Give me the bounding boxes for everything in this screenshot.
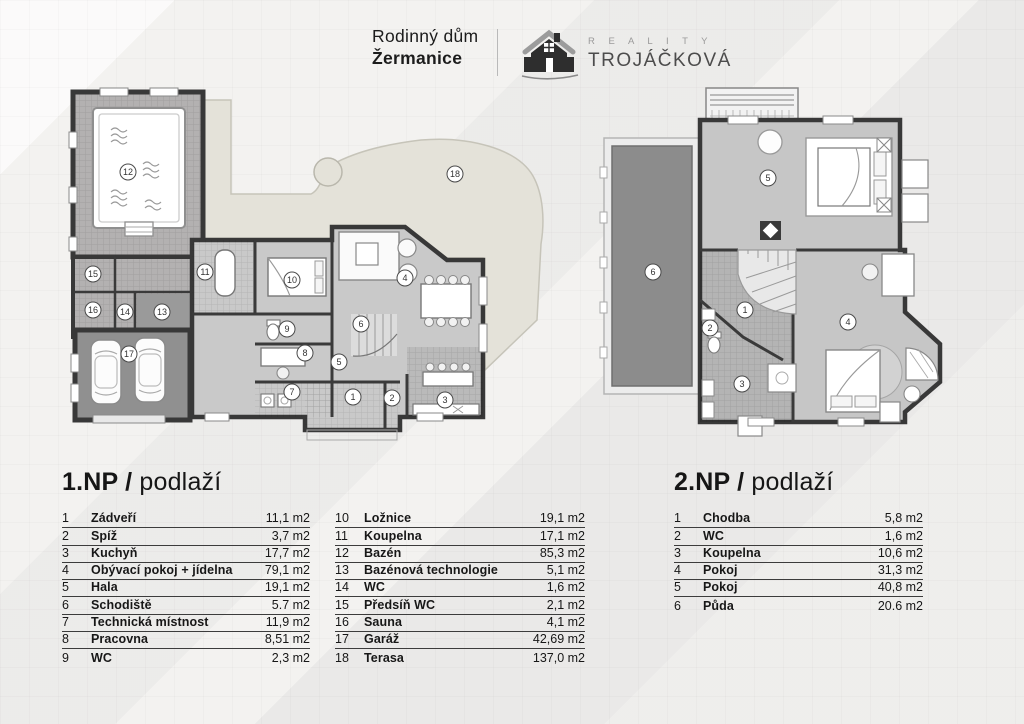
room-number: 3 bbox=[62, 546, 91, 560]
room-area: 31,3 m2 bbox=[878, 563, 923, 577]
room-marker: 12 bbox=[123, 167, 133, 177]
room-name: Kuchyň bbox=[91, 546, 137, 560]
room-name: Pracovna bbox=[91, 632, 148, 646]
floorplan-1np-drawing: 1 2 3 4 5 6 7 8 9 10 11 12 13 14 15 16 1… bbox=[55, 82, 545, 454]
room-marker: 4 bbox=[402, 273, 407, 283]
floor1-room-table-left: 1 Zádveří 11,1 m2 2 Spíž 3,7 m2 3 Kuchyň… bbox=[62, 511, 310, 667]
room-marker: 7 bbox=[289, 387, 294, 397]
room-area: 3,7 m2 bbox=[272, 529, 310, 543]
room-number: 12 bbox=[335, 546, 364, 560]
room-name: Koupelna bbox=[364, 529, 422, 543]
room-number: 16 bbox=[335, 615, 364, 629]
room-number: 1 bbox=[674, 511, 703, 525]
table-row: 13 Bazénová technologie 5,1 m2 bbox=[335, 563, 585, 580]
house-type-title: Rodinný dům bbox=[372, 26, 478, 48]
table-row: 7 Technická místnost 11,9 m2 bbox=[62, 615, 310, 632]
room-name: Terasa bbox=[364, 651, 404, 665]
room-area: 19,1 m2 bbox=[265, 580, 310, 594]
logo-chimney bbox=[554, 33, 560, 42]
room-number: 10 bbox=[335, 511, 364, 525]
brand-logo: R E A L I T Y TROJÁČKOVÁ bbox=[521, 27, 732, 81]
brand-word-reality: R E A L I T Y bbox=[588, 36, 732, 47]
room-area: 10,6 m2 bbox=[878, 546, 923, 560]
floor2-room-table: 1 Chodba 5,8 m2 2 WC 1,6 m2 3 Koupelna 1… bbox=[674, 511, 923, 615]
floor2-heading-light: podlaží bbox=[751, 468, 833, 496]
logo-swoosh bbox=[522, 75, 578, 79]
table-row: 3 Koupelna 10,6 m2 bbox=[674, 546, 923, 563]
floor2-heading: 2.NP / podlaží bbox=[674, 468, 833, 497]
room-marker: 9 bbox=[284, 324, 289, 334]
room-area: 42,69 m2 bbox=[533, 632, 585, 646]
table-row: 1 Zádveří 11,1 m2 bbox=[62, 511, 310, 528]
room-name: Ložnice bbox=[364, 511, 411, 525]
room-marker: 18 bbox=[450, 169, 460, 179]
table-row: 5 Pokoj 40,8 m2 bbox=[674, 580, 923, 597]
room-marker: 17 bbox=[124, 349, 134, 359]
room-number: 6 bbox=[62, 598, 91, 612]
bed-room4 bbox=[826, 350, 880, 412]
floor1-heading: 1.NP / podlaží bbox=[62, 468, 221, 497]
garage bbox=[71, 330, 190, 423]
table-row: 15 Předsíň WC 2,1 m2 bbox=[335, 597, 585, 614]
header-divider bbox=[497, 29, 498, 76]
room-number: 5 bbox=[674, 580, 703, 594]
room-number: 1 bbox=[62, 511, 91, 525]
room-number: 15 bbox=[335, 598, 364, 612]
room-number: 14 bbox=[335, 580, 364, 594]
room-name: Schodiště bbox=[91, 598, 152, 612]
room-marker: 3 bbox=[442, 395, 447, 405]
table-row: 2 WC 1,6 m2 bbox=[674, 528, 923, 545]
room-marker: 10 bbox=[287, 275, 297, 285]
floor1-room-table-right: 10 Ložnice 19,1 m2 11 Koupelna 17,1 m2 1… bbox=[335, 511, 585, 667]
house-logo-icon bbox=[521, 27, 579, 81]
room-name: Technická místnost bbox=[91, 615, 209, 629]
terrace-tree bbox=[314, 158, 342, 186]
fireplace bbox=[760, 221, 781, 240]
wardrobes-right bbox=[902, 160, 928, 222]
skylight bbox=[758, 130, 782, 154]
room-area: 11,1 m2 bbox=[266, 511, 310, 525]
location-title: Žermanice bbox=[372, 48, 478, 70]
room-number: 11 bbox=[335, 529, 364, 543]
room-name: Garáž bbox=[364, 632, 399, 646]
pool-steps bbox=[125, 222, 153, 236]
floor1-heading-bold: 1.NP / bbox=[62, 468, 132, 496]
bathtub bbox=[215, 250, 235, 296]
room-marker: 3 bbox=[739, 379, 744, 389]
table-row: 12 Bazén 85,3 m2 bbox=[335, 546, 585, 563]
room-name: Bazén bbox=[364, 546, 401, 560]
table-row: 1 Chodba 5,8 m2 bbox=[674, 511, 923, 528]
table-row: 10 Ložnice 19,1 m2 bbox=[335, 511, 585, 528]
table-row: 5 Hala 19,1 m2 bbox=[62, 580, 310, 597]
room-marker: 1 bbox=[742, 305, 747, 315]
table-row: 14 WC 1,6 m2 bbox=[335, 580, 585, 597]
room-name: Spíž bbox=[91, 529, 117, 543]
room-number: 4 bbox=[674, 563, 703, 577]
room-number: 17 bbox=[335, 632, 364, 646]
logo-wing-left bbox=[524, 57, 531, 72]
floorplan-2np-drawing: 1 2 3 4 5 6 bbox=[598, 82, 968, 447]
table-row: 4 Pokoj 31,3 m2 bbox=[674, 563, 923, 580]
shower bbox=[768, 364, 796, 392]
bed-room5 bbox=[806, 138, 892, 216]
room-area: 20.6 m2 bbox=[878, 599, 923, 613]
room-area: 5,1 m2 bbox=[547, 563, 585, 577]
room-name: Předsíň WC bbox=[364, 598, 435, 612]
room-number: 2 bbox=[674, 529, 703, 543]
table-row: 6 Půda 20.6 m2 bbox=[674, 597, 923, 614]
room-area: 1,6 m2 bbox=[547, 580, 585, 594]
toilet bbox=[267, 320, 280, 340]
room-name: Sauna bbox=[364, 615, 402, 629]
room-marker: 1 bbox=[350, 392, 355, 402]
floorplan-1np: 1 2 3 4 5 6 7 8 9 10 11 12 13 14 15 16 1… bbox=[55, 82, 545, 454]
pool bbox=[93, 108, 185, 228]
room-area: 5.7 m2 bbox=[272, 598, 310, 612]
room-marker: 2 bbox=[707, 323, 712, 333]
table-row: 4 Obývací pokoj + jídelna 79,1 m2 bbox=[62, 563, 310, 580]
logo-door bbox=[546, 58, 553, 72]
room-marker: 6 bbox=[650, 267, 655, 277]
room-name: WC bbox=[364, 580, 385, 594]
room-name: Hala bbox=[91, 580, 118, 594]
room-number: 6 bbox=[674, 599, 703, 613]
table-row: 11 Koupelna 17,1 m2 bbox=[335, 528, 585, 545]
room-area: 5,8 m2 bbox=[885, 511, 923, 525]
car bbox=[135, 338, 165, 402]
room-marker: 4 bbox=[845, 317, 850, 327]
room-marker: 15 bbox=[88, 269, 98, 279]
table-row: 17 Garáž 42,69 m2 bbox=[335, 632, 585, 649]
room-name: WC bbox=[703, 529, 724, 543]
room-marker: 5 bbox=[336, 357, 341, 367]
room-name: Pokoj bbox=[703, 563, 738, 577]
room-name: Zádveří bbox=[91, 511, 136, 525]
room-marker: 8 bbox=[302, 348, 307, 358]
room-marker: 6 bbox=[358, 319, 363, 329]
brand-text: R E A L I T Y TROJÁČKOVÁ bbox=[588, 27, 732, 72]
room-area: 137,0 m2 bbox=[533, 651, 585, 665]
room-marker: 2 bbox=[389, 393, 394, 403]
table-row: 3 Kuchyň 17,7 m2 bbox=[62, 546, 310, 563]
table-row: 18 Terasa 137,0 m2 bbox=[335, 649, 585, 666]
table-row: 9 WC 2,3 m2 bbox=[62, 649, 310, 666]
room-area: 19,1 m2 bbox=[540, 511, 585, 525]
room-number: 4 bbox=[62, 563, 91, 577]
room-number: 18 bbox=[335, 651, 364, 665]
room-area: 79,1 m2 bbox=[265, 563, 310, 577]
floor1-heading-light: podlaží bbox=[139, 468, 221, 496]
room-marker: 16 bbox=[88, 305, 98, 315]
room-name: WC bbox=[91, 651, 112, 665]
room-area: 40,8 m2 bbox=[878, 580, 923, 594]
room-number: 7 bbox=[62, 615, 91, 629]
room-marker: 5 bbox=[765, 173, 770, 183]
corner-sink bbox=[702, 309, 715, 320]
table-row: 6 Schodiště 5.7 m2 bbox=[62, 597, 310, 614]
room-name: Bazénová technologie bbox=[364, 563, 498, 577]
page-title: Rodinný dům Žermanice bbox=[372, 26, 478, 70]
floor2-heading-bold: 2.NP / bbox=[674, 468, 744, 496]
room-area: 2,1 m2 bbox=[547, 598, 585, 612]
room-marker: 11 bbox=[200, 267, 209, 277]
room-number: 13 bbox=[335, 563, 364, 577]
car bbox=[91, 340, 121, 404]
room-area: 8,51 m2 bbox=[265, 632, 310, 646]
room-area: 11,9 m2 bbox=[266, 615, 310, 629]
garage-door bbox=[93, 415, 165, 423]
room-area: 4,1 m2 bbox=[547, 615, 585, 629]
room-marker: 13 bbox=[157, 307, 167, 317]
room-number: 9 bbox=[62, 651, 91, 665]
table-row: 2 Spíž 3,7 m2 bbox=[62, 528, 310, 545]
room-name: Koupelna bbox=[703, 546, 761, 560]
room-number: 2 bbox=[62, 529, 91, 543]
room-area: 85,3 m2 bbox=[540, 546, 585, 560]
room-area: 1,6 m2 bbox=[885, 529, 923, 543]
room-name: Obývací pokoj + jídelna bbox=[91, 563, 233, 577]
table-row: 16 Sauna 4,1 m2 bbox=[335, 615, 585, 632]
logo-wing-right bbox=[567, 57, 574, 72]
room-area: 17,7 m2 bbox=[265, 546, 310, 560]
room-name: Pokoj bbox=[703, 580, 738, 594]
floorplan-2np: 1 2 3 4 5 6 bbox=[598, 82, 968, 447]
room-name: Chodba bbox=[703, 511, 750, 525]
room-area: 17,1 m2 bbox=[540, 529, 585, 543]
room-number: 8 bbox=[62, 632, 91, 646]
table-row: 8 Pracovna 8,51 m2 bbox=[62, 632, 310, 649]
brand-word-trojackova: TROJÁČKOVÁ bbox=[588, 50, 732, 72]
room-name: Půda bbox=[703, 599, 734, 613]
room-marker: 14 bbox=[120, 307, 130, 317]
room-area: 2,3 m2 bbox=[272, 651, 310, 665]
room-number: 5 bbox=[62, 580, 91, 594]
room-number: 3 bbox=[674, 546, 703, 560]
